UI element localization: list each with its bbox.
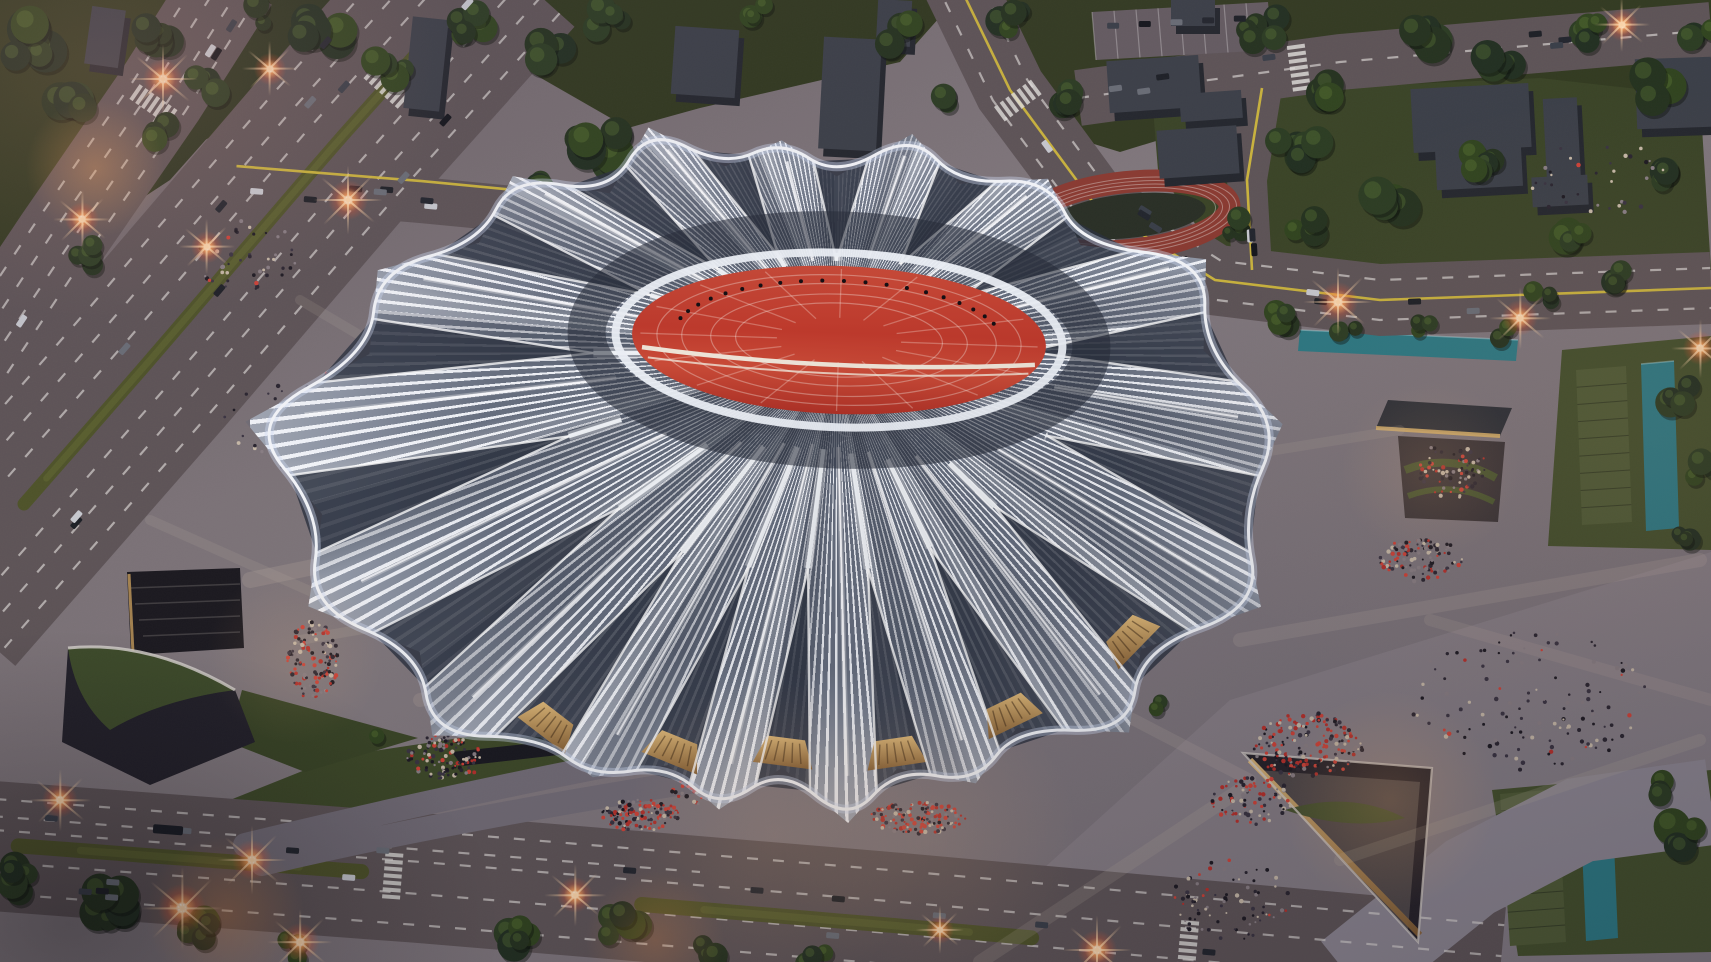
streetlight-lens-flare [39, 779, 80, 820]
car [750, 887, 763, 894]
triangle-court [1243, 753, 1432, 942]
flare-ray [187, 227, 227, 267]
building-roof [671, 26, 740, 98]
flare-core [325, 177, 371, 223]
car [250, 188, 263, 195]
lit-facade-gap [517, 702, 573, 754]
car [342, 874, 355, 881]
parked-car [1170, 19, 1182, 25]
building-roof [84, 6, 126, 68]
building-roof [1435, 146, 1523, 190]
service-lane-south [0, 795, 701, 889]
lit-facade-gap [1106, 615, 1160, 670]
flare-core [1499, 297, 1540, 338]
lawn-small-southwest [228, 690, 418, 772]
flare-ray [37, 777, 82, 822]
flare-ray [1063, 949, 1132, 951]
car [1314, 298, 1328, 306]
canal-bottom-right [1580, 797, 1618, 941]
flare-ray [321, 177, 375, 223]
streetlight-lens-flare [1499, 297, 1540, 338]
flare-ray [939, 906, 941, 954]
lit-facade-gap [868, 736, 927, 771]
flare-core [278, 920, 322, 962]
flare-ray [347, 166, 349, 235]
stadium-roof-spokes [250, 115, 1316, 825]
boulevard-west [0, 0, 574, 666]
greenbelt-top-right [955, 0, 1711, 152]
flare-ray [136, 56, 190, 102]
lawn-bottom-right [1492, 770, 1711, 956]
building-roof [1635, 57, 1711, 130]
car [106, 879, 119, 886]
flare-ray [916, 929, 964, 931]
bus [153, 824, 184, 835]
warm-light-glow [1340, 380, 1520, 560]
car [397, 171, 410, 185]
warm-light-glow [780, 688, 1080, 962]
grass-pavers-bottom-right [1500, 789, 1566, 946]
flare-ray [552, 872, 597, 917]
streetlight-lens-flare [1604, 7, 1641, 44]
flare-ray [181, 867, 183, 950]
building [408, 24, 453, 119]
building [1184, 98, 1248, 130]
flare-ray [1594, 24, 1649, 26]
car [178, 827, 191, 834]
flare-ray [59, 769, 61, 831]
lawn-band-south [150, 674, 1092, 856]
warm-light-glow [145, 835, 305, 962]
flare-ray [1096, 916, 1098, 962]
car [1306, 289, 1320, 297]
car [826, 932, 839, 939]
flare-ray [1496, 297, 1545, 338]
flare-ray [1070, 927, 1124, 962]
terrain-layer [0, 0, 1711, 962]
stadium-silhouette [269, 140, 1269, 809]
flare-ray [59, 199, 105, 238]
flare-ray [551, 874, 600, 915]
car [1137, 209, 1151, 221]
building-roof [876, 0, 912, 47]
building-roof [1106, 55, 1201, 113]
parking-lot [1092, 2, 1272, 60]
car [304, 196, 317, 203]
parked-car [1139, 21, 1151, 27]
streetlight-lens-flare [278, 920, 322, 962]
flare-ray [267, 941, 333, 943]
car [105, 894, 118, 901]
plaza-paths [150, 300, 1711, 962]
flare-core [252, 51, 289, 88]
flare-ray [162, 45, 164, 114]
building-roof [1531, 175, 1588, 208]
building [89, 14, 131, 76]
lit-facade-gap [987, 693, 1043, 739]
car [215, 199, 228, 213]
car [1041, 139, 1054, 153]
bright-plaza-zone [940, 552, 1711, 962]
warm-light-glow [25, 98, 165, 238]
flare-ray [150, 881, 215, 936]
car [70, 516, 83, 530]
flare-ray [225, 837, 279, 883]
ramp-wedge [452, 710, 846, 766]
flare-ray [922, 912, 958, 948]
car [1262, 54, 1276, 62]
car [420, 197, 434, 204]
dusk-color-grade-overlay [0, 0, 1711, 962]
escalator-court [127, 568, 244, 655]
road-markings-layer [0, 0, 1711, 962]
car [461, 0, 474, 11]
flare-ray [1304, 301, 1373, 303]
flare-core [140, 56, 186, 102]
warm-light-glow [1280, 690, 1500, 910]
facade-gold-strips [517, 615, 1160, 775]
car [96, 888, 109, 895]
boulevard-south [0, 777, 1506, 962]
flare-ray [1313, 277, 1363, 327]
lit-facade-gap [753, 735, 813, 769]
flare-ray [248, 50, 292, 87]
streetlight-lens-flare [924, 914, 956, 946]
car [304, 95, 317, 109]
car [1408, 298, 1421, 304]
flare-core [554, 874, 595, 915]
car [439, 113, 452, 127]
car [1529, 31, 1542, 38]
entrance-pavilion [1376, 400, 1512, 436]
flare-ray [1311, 279, 1365, 325]
warm-light-glow [205, 565, 385, 745]
flare-core [1315, 279, 1361, 325]
streetlight-lens-flare [62, 199, 101, 238]
car [337, 80, 350, 94]
flare-core [154, 880, 209, 935]
parked-car [1107, 23, 1119, 29]
car [319, 36, 332, 50]
grass-pavers-mid-right [1576, 366, 1632, 525]
flare-ray [274, 920, 325, 962]
warm-light-glow [585, 870, 725, 962]
flare-ray [179, 246, 234, 248]
flare-ray [1337, 268, 1339, 337]
garden-court [62, 648, 255, 785]
car [623, 867, 636, 874]
walkway-southeast [1321, 759, 1711, 962]
building [1536, 183, 1593, 216]
flare-ray [251, 826, 253, 895]
car [286, 847, 299, 854]
flare-ray [206, 219, 208, 274]
car [1249, 228, 1256, 241]
flare-ray [129, 78, 198, 80]
roads-layer [0, 0, 1711, 962]
flare-ray [242, 68, 297, 70]
streetlight-lens-flare [252, 51, 289, 88]
flare-core [229, 837, 275, 883]
ground-base [0, 0, 1711, 962]
streetlight-lens-flare [189, 229, 226, 266]
car [1558, 36, 1571, 43]
car [1156, 73, 1170, 81]
flare-core [924, 914, 956, 946]
streetlight-lens-flare [1680, 328, 1711, 367]
tree-wedge-left [112, 0, 330, 218]
flare-ray [276, 918, 324, 962]
lit-facade-gap [641, 730, 697, 774]
building [1440, 154, 1528, 198]
car [374, 189, 387, 196]
flare-ray [185, 228, 229, 265]
car [380, 186, 393, 193]
trees-layer [0, 0, 1711, 962]
flare-ray [323, 175, 373, 225]
road-north-to-east [920, 0, 1711, 336]
building [1111, 63, 1206, 121]
flare-ray [574, 864, 576, 926]
car [78, 888, 91, 895]
red-seating-bowl [630, 259, 1049, 421]
flare-ray [1489, 317, 1551, 319]
building-roof [1410, 83, 1531, 153]
flare-ray [544, 894, 606, 896]
flare-core [189, 229, 226, 266]
flare-ray [1519, 287, 1521, 349]
vehicles-layer [0, 0, 1572, 962]
car [1035, 921, 1048, 928]
building [1640, 65, 1711, 138]
building-roof [818, 37, 882, 152]
greenery-layer [0, 0, 1711, 956]
car [1137, 87, 1151, 95]
petal-dark-wedges [290, 150, 1259, 791]
crowds-layer [199, 146, 1665, 940]
building [823, 45, 887, 160]
flare-ray [921, 914, 959, 947]
flare-ray [81, 190, 83, 249]
aerial-stadium-rendering [0, 0, 1711, 962]
building [881, 7, 917, 55]
flare-ray [250, 49, 290, 89]
film-grain [0, 0, 1711, 962]
greenbelt-top-left [0, 0, 955, 290]
flare-ray [1600, 6, 1644, 43]
building-roof [1179, 90, 1243, 122]
road-northwest [0, 0, 272, 416]
car [1247, 229, 1254, 242]
streetlight-lens-flare [140, 56, 186, 102]
flare-ray [1621, 0, 1623, 53]
car [70, 510, 83, 524]
streetlight-lens-flare [1074, 927, 1120, 962]
flare-ray [138, 54, 188, 104]
flare-ray [1602, 5, 1642, 45]
flare-ray [314, 199, 383, 201]
flare-ray [36, 779, 85, 820]
flare-ray [1072, 925, 1122, 962]
flare-core [39, 779, 80, 820]
dropoff-loop-road [245, 721, 903, 864]
branch-northeast [1227, 85, 1282, 271]
building [1415, 91, 1536, 161]
flare-ray [1699, 319, 1701, 378]
car [1251, 243, 1258, 256]
car [1109, 85, 1123, 93]
car [349, 185, 362, 192]
spur-dropoff [233, 162, 547, 235]
flare-ray [152, 878, 212, 938]
car [832, 895, 845, 902]
stadium-structure [0, 0, 1711, 962]
streetlight-lens-flare [325, 177, 371, 223]
warm-light-glow [615, 675, 935, 962]
flare-ray [218, 859, 287, 861]
stadium-silhouette-glow [269, 140, 1269, 809]
petal-ribs [290, 150, 1259, 791]
flare-ray [61, 198, 104, 241]
flare-ray [1497, 295, 1542, 340]
parked-car [1202, 17, 1214, 23]
car [210, 47, 222, 61]
car [16, 314, 28, 328]
flare-ray [1679, 327, 1711, 370]
running-track [1016, 167, 1241, 264]
stadium-bowl [583, 222, 1095, 459]
building-roof [1543, 97, 1582, 187]
car [424, 203, 438, 210]
building [1548, 105, 1587, 195]
flare-ray [269, 41, 271, 96]
flare-core [62, 199, 101, 238]
flare-ray [1677, 328, 1711, 367]
sunken-courts [62, 400, 1512, 942]
streetlight-lens-flare [229, 837, 275, 883]
car [933, 912, 946, 919]
car [1467, 308, 1480, 314]
flare-ray [299, 909, 301, 962]
car [226, 19, 238, 33]
parked-car [1234, 16, 1246, 22]
car [1202, 949, 1215, 956]
flare-core [1680, 328, 1711, 367]
buildings-layer [84, 0, 1711, 215]
car [1182, 256, 1196, 268]
pavilion-court [1398, 436, 1505, 522]
building [1161, 133, 1244, 186]
lawn-mid-right [1548, 336, 1711, 550]
building [1176, 8, 1220, 34]
car [1138, 205, 1152, 217]
flare-ray [53, 218, 112, 220]
flare-core [1604, 7, 1641, 44]
car [45, 815, 58, 822]
building-roof [403, 16, 448, 111]
road-far-north [1074, 2, 1711, 126]
flare-ray [227, 835, 277, 885]
car [1550, 42, 1563, 49]
car [1148, 222, 1162, 234]
flare-ray [141, 907, 224, 909]
building [676, 34, 745, 106]
flare-ray [1671, 347, 1711, 349]
streetlight-lens-flare [554, 874, 595, 915]
streetlight-lens-flare [1315, 279, 1361, 325]
building-roof [1156, 125, 1239, 178]
building-roof [1171, 0, 1215, 26]
streetlight-lens-flare [154, 880, 209, 935]
flare-core [1074, 927, 1120, 962]
canal-along-road [1298, 330, 1518, 361]
car [118, 342, 131, 356]
flare-ray [29, 799, 91, 801]
car [213, 284, 226, 298]
car [204, 44, 216, 58]
car [376, 847, 389, 854]
canal-mid-right [1641, 361, 1679, 531]
lawn-top-right [1152, 78, 1711, 302]
